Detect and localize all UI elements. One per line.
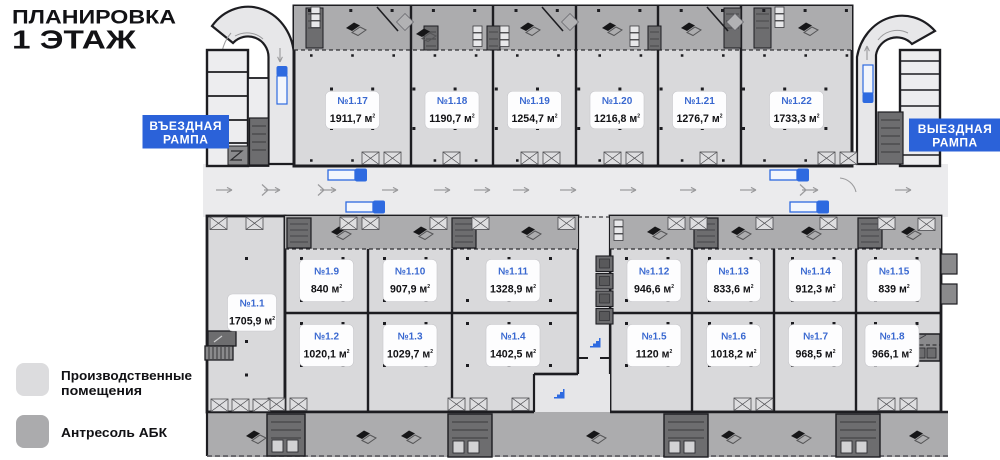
svg-text:Производственные: Производственные — [61, 369, 192, 383]
svg-text:№1.5: №1.5 — [641, 332, 666, 343]
svg-text:946,6 м2: 946,6 м2 — [634, 284, 674, 296]
svg-text:968,5 м2: 968,5 м2 — [795, 349, 835, 361]
svg-text:№1.13: №1.13 — [718, 267, 749, 278]
svg-text:1733,3 м2: 1733,3 м2 — [774, 113, 820, 125]
svg-text:966,1 м2: 966,1 м2 — [872, 349, 912, 361]
svg-text:1328,9 м2: 1328,9 м2 — [490, 284, 536, 296]
svg-text:№1.17: №1.17 — [337, 96, 368, 107]
svg-text:839 м2: 839 м2 — [878, 284, 909, 296]
svg-text:№1.22: №1.22 — [781, 96, 812, 107]
svg-text:Антресоль АБК: Антресоль АБК — [61, 426, 167, 440]
svg-text:1018,2 м2: 1018,2 м2 — [711, 349, 757, 361]
svg-text:№1.12: №1.12 — [639, 267, 670, 278]
svg-text:№1.11: №1.11 — [498, 267, 528, 278]
svg-text:1190,7 м2: 1190,7 м2 — [429, 113, 475, 125]
svg-text:№1.8: №1.8 — [879, 332, 904, 343]
svg-text:1911,7 м2: 1911,7 м2 — [330, 113, 376, 125]
svg-text:833,6 м2: 833,6 м2 — [713, 284, 753, 296]
svg-text:№1.7: №1.7 — [803, 332, 828, 343]
svg-text:№1.2: №1.2 — [314, 332, 339, 343]
svg-text:№1.4: №1.4 — [500, 332, 525, 343]
svg-text:1276,7 м2: 1276,7 м2 — [677, 113, 723, 125]
svg-text:№1.20: №1.20 — [602, 96, 633, 107]
svg-text:1216,8 м2: 1216,8 м2 — [594, 113, 640, 125]
svg-text:1254,7 м2: 1254,7 м2 — [512, 113, 558, 125]
svg-text:№1.1: №1.1 — [239, 299, 264, 310]
svg-text:РАМПА: РАМПА — [932, 136, 977, 150]
svg-text:1120 м2: 1120 м2 — [636, 349, 673, 361]
svg-text:1029,7 м2: 1029,7 м2 — [387, 349, 433, 361]
svg-text:№1.9: №1.9 — [314, 267, 339, 278]
svg-text:1020,1 м2: 1020,1 м2 — [304, 349, 350, 361]
svg-text:№1.19: №1.19 — [519, 96, 550, 107]
svg-text:907,9 м2: 907,9 м2 — [390, 284, 430, 296]
svg-text:помещения: помещения — [61, 384, 142, 398]
svg-text:1 ЭТАЖ: 1 ЭТАЖ — [12, 25, 137, 55]
svg-text:РАМПА: РАМПА — [163, 133, 208, 147]
svg-text:№1.6: №1.6 — [721, 332, 746, 343]
svg-text:1705,9 м2: 1705,9 м2 — [229, 316, 275, 328]
svg-text:№1.21: №1.21 — [684, 96, 715, 107]
svg-text:№1.18: №1.18 — [437, 96, 468, 107]
svg-text:ВЫЕЗДНАЯ: ВЫЕЗДНАЯ — [918, 122, 992, 136]
svg-text:№1.15: №1.15 — [879, 267, 910, 278]
svg-text:№1.3: №1.3 — [397, 332, 422, 343]
svg-text:ВЪЕЗДНАЯ: ВЪЕЗДНАЯ — [149, 119, 222, 133]
svg-text:840 м2: 840 м2 — [311, 284, 342, 296]
svg-text:912,3 м2: 912,3 м2 — [795, 284, 835, 296]
svg-text:№1.14: №1.14 — [800, 267, 831, 278]
svg-text:№1.10: №1.10 — [395, 267, 426, 278]
svg-text:1402,5 м2: 1402,5 м2 — [490, 349, 536, 361]
